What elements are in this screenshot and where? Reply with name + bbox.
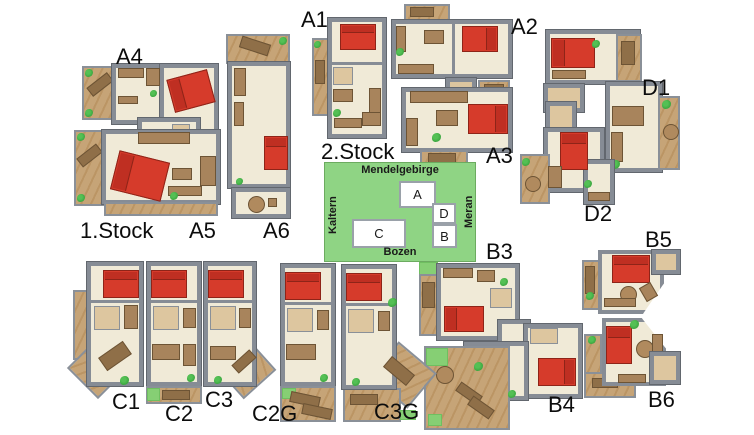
map-building-d: D (432, 203, 456, 224)
label-a5: A5 (189, 218, 216, 244)
label-c2: C2 (165, 401, 193, 427)
map-building-c-label: C (374, 226, 383, 241)
label-b3: B3 (486, 239, 513, 265)
label-a1: A1 (301, 7, 328, 33)
label-c3: C3 (205, 387, 233, 413)
label-floor-2: 2.Stock (321, 139, 394, 165)
map-label-kaltern: Kaltern (327, 164, 339, 234)
map-label-meran: Meran (463, 168, 475, 228)
map-building-a-label: A (413, 187, 422, 202)
map-label-mendelgebirge: Mendelgebirge (324, 164, 476, 176)
label-a6: A6 (263, 218, 290, 244)
map-label-bozen: Bozen (324, 246, 476, 258)
inner-wall (346, 303, 392, 306)
label-a3: A3 (486, 143, 513, 169)
map-building-b-label: B (440, 229, 449, 244)
label-b4: B4 (548, 392, 575, 418)
label-a4: A4 (116, 44, 143, 70)
floorplan-overview: A D B C Mendelgebirge Bozen Kaltern Mera… (0, 0, 754, 435)
map-building-d-label: D (439, 206, 448, 221)
bath-fixture (348, 309, 374, 333)
label-b6: B6 (648, 387, 675, 413)
label-a2: A2 (511, 14, 538, 40)
map-building-a: A (399, 181, 436, 208)
label-d1: D1 (642, 75, 670, 101)
map-building-c: C (352, 219, 406, 248)
label-floor-1: 1.Stock (80, 218, 153, 244)
label-b5: B5 (645, 227, 672, 253)
kitchen-unit (378, 311, 390, 331)
label-c2g: C2G (252, 401, 297, 427)
bed (346, 273, 382, 301)
map-building-b: B (432, 224, 457, 248)
label-d2: D2 (584, 201, 612, 227)
label-c3g: C3G (374, 399, 419, 425)
label-c1: C1 (112, 389, 140, 415)
